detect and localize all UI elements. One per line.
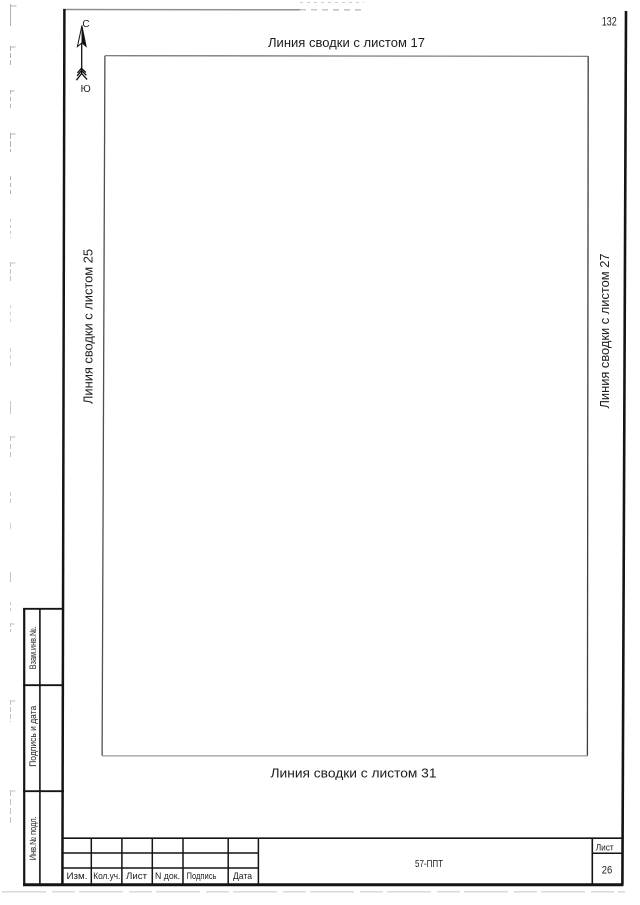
- svg-text:Линия сводки с листом 17: Линия сводки с листом 17: [268, 35, 425, 50]
- svg-text:Ю: Ю: [81, 84, 91, 95]
- svg-text:Линия сводки с листом 25: Линия сводки с листом 25: [81, 249, 96, 404]
- svg-text:С: С: [82, 19, 89, 30]
- svg-text:Подпись и дата: Подпись и дата: [28, 706, 38, 767]
- svg-text:Линия сводки с листом 27: Линия сводки с листом 27: [597, 254, 612, 409]
- svg-text:Изм.: Изм.: [67, 871, 88, 881]
- svg-text:Инв.№ подл.: Инв.№ подл.: [28, 816, 38, 860]
- svg-text:Подпись: Подпись: [187, 871, 217, 881]
- svg-text:Взам.инв.№.: Взам.инв.№.: [28, 626, 38, 669]
- svg-text:Кол.уч.: Кол.уч.: [93, 871, 120, 881]
- svg-text:N док.: N док.: [155, 871, 180, 881]
- svg-text:Линия сводки с листом 31: Линия сводки с листом 31: [271, 766, 437, 781]
- svg-text:57-ППТ: 57-ППТ: [415, 858, 443, 870]
- svg-text:132: 132: [602, 16, 617, 28]
- svg-text:26: 26: [602, 864, 613, 876]
- svg-text:Лист: Лист: [596, 842, 615, 853]
- svg-text:Дата: Дата: [233, 871, 253, 881]
- svg-text:Лист: Лист: [126, 871, 148, 881]
